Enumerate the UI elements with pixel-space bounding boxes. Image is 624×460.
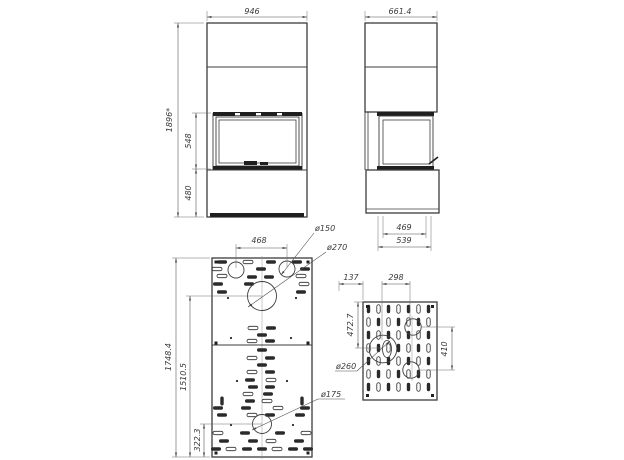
corner-tab xyxy=(431,305,434,308)
vent-slot xyxy=(292,260,302,263)
corner-tab xyxy=(215,261,218,264)
side-depth-dim: 661.4 xyxy=(389,7,412,16)
vent-slot xyxy=(213,406,223,409)
vent-slot xyxy=(387,370,390,379)
side-panel-hole-top xyxy=(405,319,421,335)
vent-slot xyxy=(217,413,227,416)
vent-slot xyxy=(295,413,305,416)
side-panel-hole-bottom xyxy=(403,362,419,378)
technical-drawing: 946 1896* 548 480 661.4 469 xyxy=(0,0,624,460)
vent-slot xyxy=(266,439,276,442)
vent-slot xyxy=(247,339,257,342)
front-door-bottom-bar xyxy=(213,166,302,170)
vent-slot xyxy=(247,356,257,359)
vent-slot xyxy=(377,318,380,327)
front-width-dim: 946 xyxy=(244,7,259,16)
top-offset-dim: 472.7 xyxy=(346,313,355,337)
front-glass xyxy=(219,120,296,163)
front-height-dim: 1896* xyxy=(165,108,174,132)
vent-slot xyxy=(377,383,380,392)
vent-slot xyxy=(397,318,400,327)
corner-tab xyxy=(366,305,369,308)
vent-slot xyxy=(265,370,275,373)
vent-slot xyxy=(272,447,282,450)
vent-slot xyxy=(219,439,229,442)
vent-slot xyxy=(397,305,400,314)
corner-tab xyxy=(366,394,369,397)
front-grille-gap xyxy=(235,113,240,115)
panel-length-dim: 1748.4 xyxy=(164,343,173,371)
vent-slot xyxy=(243,392,253,395)
vent-slot xyxy=(213,282,223,285)
vent-slot xyxy=(377,357,380,366)
corner-tab xyxy=(307,452,310,455)
vent-slot xyxy=(247,275,257,278)
vent-slot xyxy=(367,357,370,366)
vent-slot xyxy=(248,385,258,388)
vent-slot xyxy=(263,392,273,395)
vent-slot xyxy=(226,447,236,450)
hole-175-label: ø175 xyxy=(320,390,341,399)
vent-slot xyxy=(294,439,304,442)
vent-slot xyxy=(417,305,420,314)
vent-slot xyxy=(217,274,227,277)
vent-slot xyxy=(296,274,306,277)
rivet-dot xyxy=(236,380,238,382)
vent-slot xyxy=(303,447,313,450)
vent-slot xyxy=(248,326,258,329)
vent-slot xyxy=(217,290,227,293)
holes-vertical-span-dim: 410 xyxy=(440,341,449,356)
rivet-dot xyxy=(290,337,292,339)
vent-slot xyxy=(240,431,250,434)
side-view: 661.4 469 539 xyxy=(365,7,439,251)
front-door-handle xyxy=(260,162,268,165)
side-base-outline xyxy=(366,170,439,213)
bottom-hole-offset-dim: 322.3 xyxy=(193,429,202,452)
side-hood-outline xyxy=(365,23,437,112)
holes-span-dim: 468 xyxy=(251,236,266,245)
hole-260 xyxy=(369,335,397,363)
vent-slot xyxy=(245,378,255,381)
drawing-canvas: 946 1896* 548 480 661.4 469 xyxy=(0,0,624,460)
vent-slot xyxy=(397,357,400,366)
vent-slot xyxy=(367,318,370,327)
vent-slot xyxy=(256,267,266,270)
front-plinth xyxy=(210,213,304,217)
vent-slot xyxy=(387,344,390,353)
vent-slot xyxy=(387,331,390,340)
rivet-dot xyxy=(286,380,288,382)
vent-slot xyxy=(257,333,267,336)
vent-slot xyxy=(427,331,430,340)
vent-slot xyxy=(265,356,275,359)
vent-slot xyxy=(427,318,430,327)
vent-slot xyxy=(427,383,430,392)
side-glass-top-bar xyxy=(377,112,434,116)
vent-slot xyxy=(242,447,252,450)
vent-slot xyxy=(417,344,420,353)
firebox-height-dim: 548 xyxy=(184,133,193,148)
vent-slot xyxy=(417,357,420,366)
vent-slot xyxy=(407,357,410,366)
vent-slot xyxy=(367,383,370,392)
vent-slot xyxy=(265,339,275,342)
vent-slot xyxy=(257,447,267,450)
vent-slot xyxy=(266,260,276,263)
vent-slot xyxy=(217,260,227,263)
hole-270-label: ø270 xyxy=(326,243,347,252)
vent-slot xyxy=(265,385,275,388)
vent-slot xyxy=(266,378,276,381)
vent-slot xyxy=(387,305,390,314)
vent-slot xyxy=(367,331,370,340)
hole-150-label: ø150 xyxy=(314,224,335,233)
side-base-depth-dim: 539 xyxy=(396,236,411,245)
hole-260-leader xyxy=(357,341,390,371)
vent-slot xyxy=(397,383,400,392)
vent-slot xyxy=(387,318,390,327)
front-grille-gap xyxy=(256,113,261,115)
vent-slot xyxy=(257,363,267,366)
base-height-dim: 480 xyxy=(184,185,193,200)
vent-slot xyxy=(241,406,251,409)
vent-slot xyxy=(296,290,306,293)
corner-tab xyxy=(215,452,218,455)
vent-slot xyxy=(257,348,267,351)
base-panel-view: 468 ø150 ø270 ø175 1748.4 1510.5 322.3 xyxy=(164,224,347,459)
vent-slot xyxy=(397,344,400,353)
vent-slot xyxy=(427,305,430,314)
rivet-dot xyxy=(230,337,232,339)
hole-260-label: ø260 xyxy=(335,362,356,371)
front-view: 946 1896* 548 480 xyxy=(165,7,307,217)
corner-tab xyxy=(307,342,310,345)
vent-slot xyxy=(212,267,222,270)
vent-slot xyxy=(427,357,430,366)
rivet-dot xyxy=(292,424,294,426)
vent-slot xyxy=(288,447,298,450)
vent-slot xyxy=(301,431,311,434)
vent-slot xyxy=(387,383,390,392)
side-panel-view: 137 298 472.7 410 ø260 xyxy=(335,273,455,400)
vent-slot xyxy=(397,331,400,340)
vent-slot xyxy=(367,370,370,379)
vent-slot xyxy=(377,305,380,314)
vent-slot xyxy=(245,399,255,402)
vent-slot xyxy=(213,431,223,434)
vent-slot xyxy=(407,344,410,353)
vent-slot xyxy=(247,413,257,416)
vent-slot xyxy=(377,370,380,379)
vent-slot xyxy=(247,370,257,373)
corner-tab xyxy=(431,394,434,397)
edge-offset-dim: 137 xyxy=(343,273,359,282)
vent-slot xyxy=(377,331,380,340)
vent-slot xyxy=(273,406,283,409)
vent-slot xyxy=(243,260,253,263)
vent-slot xyxy=(248,439,258,442)
large-hole-offset-dim: 1510.5 xyxy=(179,363,188,391)
side-glass-frame xyxy=(379,116,433,167)
side-glass-depth-dim: 469 xyxy=(396,223,411,232)
vent-slot xyxy=(407,331,410,340)
vent-slot xyxy=(300,397,303,406)
front-door-latch xyxy=(244,161,257,165)
side-glass xyxy=(383,120,430,164)
front-grille-gap xyxy=(277,113,282,115)
vent-slot xyxy=(265,413,275,416)
vent-slot xyxy=(427,344,430,353)
vent-slot xyxy=(417,383,420,392)
vent-slot xyxy=(407,305,410,314)
corner-tab xyxy=(307,261,310,264)
corner-tab xyxy=(215,342,218,345)
rivet-dot xyxy=(295,297,297,299)
holes-span-right-dim: 298 xyxy=(388,273,403,282)
vent-slot xyxy=(220,397,223,406)
vent-slot xyxy=(275,431,285,434)
vent-slot xyxy=(266,326,276,329)
vent-slot xyxy=(211,447,221,450)
vent-slot xyxy=(397,370,400,379)
vent-slot xyxy=(407,383,410,392)
front-door-frame xyxy=(216,117,299,166)
vent-slot xyxy=(262,399,272,402)
vent-slot xyxy=(264,275,274,278)
vent-slot xyxy=(427,370,430,379)
rivet-dot xyxy=(227,297,229,299)
vent-slot xyxy=(299,282,309,285)
